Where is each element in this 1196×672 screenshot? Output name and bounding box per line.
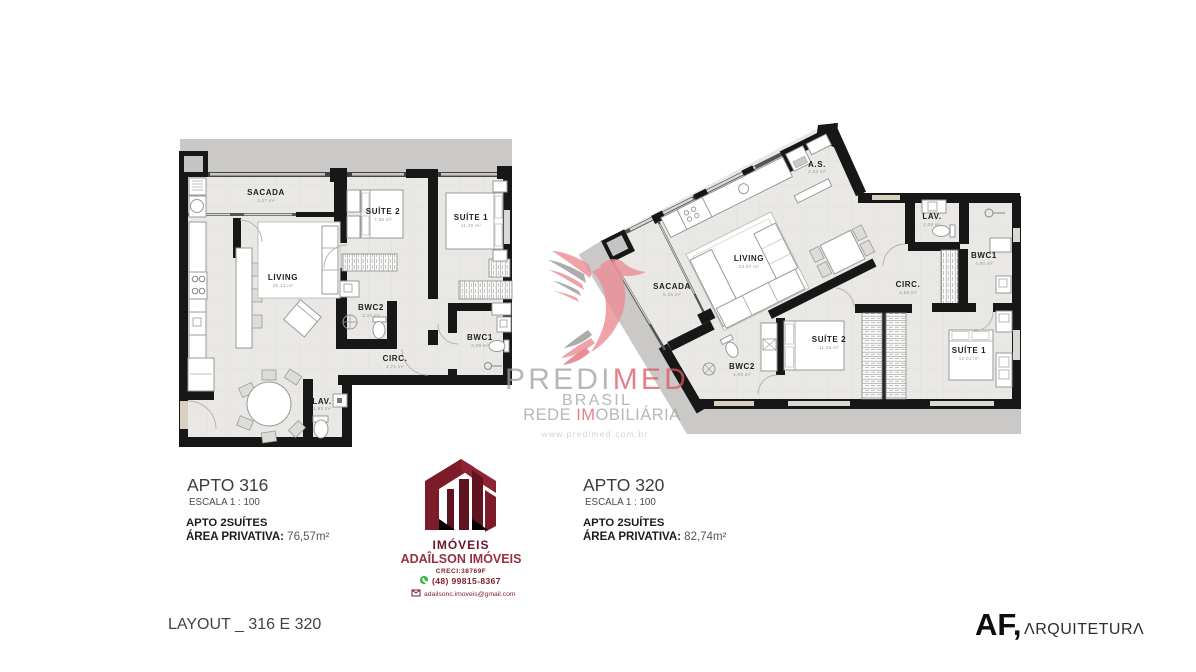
svg-text:2,62 m²: 2,62 m² — [808, 169, 826, 174]
svg-text:BWC1: BWC1 — [467, 333, 493, 342]
svg-text:ADAÎLSON IMÓVEIS: ADAÎLSON IMÓVEIS — [401, 551, 522, 566]
svg-text:4,80 m²: 4,80 m² — [975, 261, 993, 266]
svg-text:11,20 m²: 11,20 m² — [461, 223, 481, 228]
svg-text:LAV.: LAV. — [312, 397, 331, 406]
svg-text:ÁREA PRIVATIVA: 76,57m²: ÁREA PRIVATIVA: 76,57m² — [186, 530, 330, 543]
svg-text:CRECI:38769F: CRECI:38769F — [436, 568, 486, 575]
svg-text:2,71 m²: 2,71 m² — [386, 364, 404, 369]
svg-text:SUÍTE 1: SUÍTE 1 — [454, 213, 488, 222]
svg-text:www.predimed.com.br: www.predimed.com.br — [541, 429, 649, 439]
svg-text:11,06 m²: 11,06 m² — [819, 345, 839, 350]
svg-text:SUÍTE 2: SUÍTE 2 — [366, 207, 400, 216]
svg-text:ΛRQUITETURΛ: ΛRQUITETURΛ — [1024, 621, 1144, 638]
svg-text:2,08 m²: 2,08 m² — [923, 222, 941, 227]
svg-text:adailsonc.imoveis@gmail.com: adailsonc.imoveis@gmail.com — [424, 591, 516, 598]
svg-text:A.S.: A.S. — [808, 160, 826, 169]
svg-text:3,27 m²: 3,27 m² — [257, 198, 275, 203]
svg-text:(48) 99815-8367: (48) 99815-8367 — [432, 576, 501, 586]
svg-text:3,20 m²: 3,20 m² — [362, 313, 380, 318]
svg-text:APTO 2SUÍTES: APTO 2SUÍTES — [186, 516, 268, 529]
svg-text:7,86 m²: 7,86 m² — [374, 217, 392, 222]
svg-text:REDE IMOBILIÁRIA: REDE IMOBILIÁRIA — [523, 405, 680, 424]
svg-text:1,81 m²: 1,81 m² — [313, 406, 331, 411]
svg-text:ESCALA 1 : 100: ESCALA 1 : 100 — [585, 497, 656, 508]
svg-text:LAV.: LAV. — [922, 212, 941, 221]
svg-text:APTO 320: APTO 320 — [583, 475, 665, 495]
svg-text:BWC2: BWC2 — [358, 303, 384, 312]
svg-text:5,26 m²: 5,26 m² — [663, 292, 681, 297]
svg-text:4,06 m²: 4,06 m² — [733, 372, 751, 377]
svg-text:LIVING: LIVING — [268, 273, 298, 282]
svg-text:LAYOUT _ 316 E 320: LAYOUT _ 316 E 320 — [168, 616, 321, 633]
svg-text:SUÍTE 1: SUÍTE 1 — [952, 346, 986, 355]
svg-text:APTO 2SUÍTES: APTO 2SUÍTES — [583, 516, 665, 529]
svg-text:26,13 m²: 26,13 m² — [273, 283, 294, 288]
svg-text:4,88 m²: 4,88 m² — [899, 290, 917, 295]
svg-text:SACADA: SACADA — [247, 188, 285, 197]
svg-text:SACADA: SACADA — [653, 282, 691, 291]
svg-text:ESCALA 1 : 100: ESCALA 1 : 100 — [189, 497, 260, 508]
svg-text:SUÍTE 2: SUÍTE 2 — [812, 335, 846, 344]
svg-text:IMÓVEIS: IMÓVEIS — [432, 537, 489, 552]
svg-text:AF,: AF, — [975, 607, 1022, 642]
svg-text:CIRC.: CIRC. — [383, 354, 408, 363]
svg-text:CIRC.: CIRC. — [896, 280, 921, 289]
svg-text:ÁREA PRIVATIVA: 82,74m²: ÁREA PRIVATIVA: 82,74m² — [583, 530, 727, 543]
svg-text:APTO 316: APTO 316 — [187, 475, 268, 495]
svg-text:3,28 m²: 3,28 m² — [471, 343, 489, 348]
svg-text:BWC2: BWC2 — [729, 362, 755, 371]
svg-text:BWC1: BWC1 — [971, 251, 997, 260]
svg-text:LIVING: LIVING — [734, 254, 764, 263]
svg-text:23,97 m²: 23,97 m² — [739, 264, 760, 269]
svg-text:12,01 m²: 12,01 m² — [959, 356, 980, 361]
